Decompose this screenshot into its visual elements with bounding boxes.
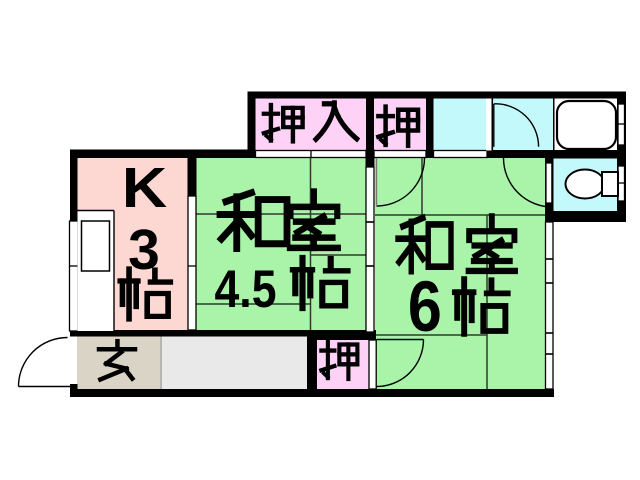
svg-text:4.5: 4.5 — [215, 260, 277, 319]
svg-text:6: 6 — [408, 268, 442, 347]
svg-text:K: K — [122, 156, 167, 220]
